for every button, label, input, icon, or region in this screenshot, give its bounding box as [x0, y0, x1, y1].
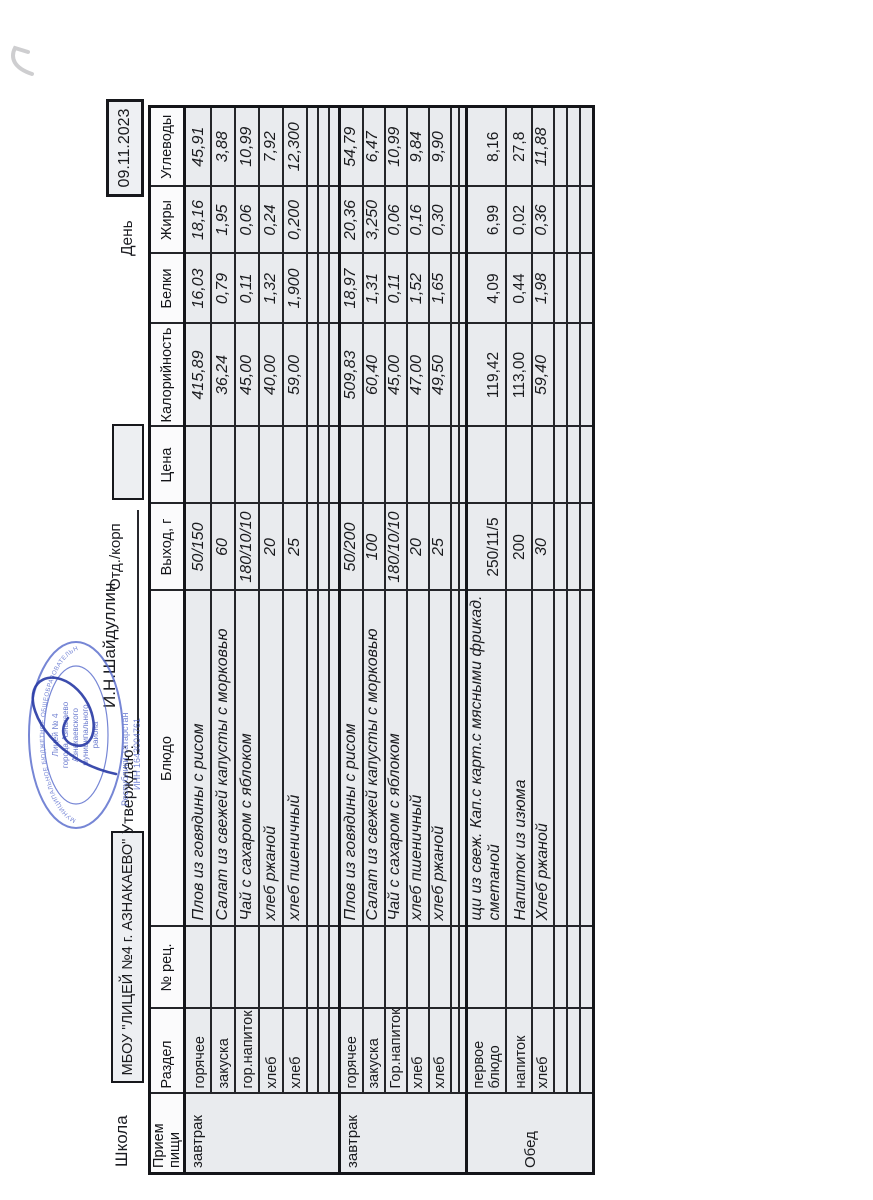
empty-row — [554, 107, 567, 1174]
empty-cell — [580, 591, 593, 927]
empty-cell — [318, 324, 329, 427]
col-header-price: Цена — [150, 427, 185, 504]
fat-cell: 0,24 — [259, 187, 283, 254]
menu-row: хлебхлеб пшеничный2559,001,9000,20012,30… — [283, 107, 307, 1174]
menu-row: напитокНапиток из изюма200113,000,440,02… — [506, 107, 532, 1174]
razdel-cell: закуска — [363, 1009, 385, 1094]
empty-cell — [459, 427, 467, 504]
recipe-cell — [283, 927, 307, 1009]
col-header-kcal: Калорийность — [150, 324, 185, 427]
empty-cell — [554, 107, 567, 187]
dish-cell: Салат из свежей капусты с морковью — [363, 591, 385, 927]
empty-cell — [329, 324, 340, 427]
out-cell: 50/150 — [185, 504, 211, 591]
price-cell — [385, 427, 407, 504]
empty-cell — [307, 324, 318, 427]
recipe-cell — [385, 927, 407, 1009]
empty-cell — [307, 427, 318, 504]
empty-cell — [580, 427, 593, 504]
out-cell: 50/200 — [340, 504, 363, 591]
meal-cell: Обед — [467, 1094, 594, 1174]
fat-cell: 0,200 — [283, 187, 307, 254]
col-header-meal: Прием пищи — [150, 1094, 185, 1174]
protein-cell: 4,09 — [467, 254, 507, 324]
dish-cell: хлеб ржаной — [429, 591, 451, 927]
empty-cell — [459, 324, 467, 427]
date-box: 09.11.2023 — [106, 99, 144, 197]
empty-cell — [451, 254, 459, 324]
dish-cell: Хлеб ржаной — [532, 591, 554, 927]
empty-cell — [318, 504, 329, 591]
out-cell: 200 — [506, 504, 532, 591]
recipe-cell — [429, 927, 451, 1009]
col-header-dish: Блюдо — [150, 591, 185, 927]
recipe-cell — [259, 927, 283, 1009]
razdel-cell: Гор.напиток — [385, 1009, 407, 1094]
carbs-cell: 10,99 — [235, 107, 259, 187]
empty-cell — [580, 504, 593, 591]
empty-cell — [451, 187, 459, 254]
empty-row — [580, 107, 593, 1174]
fat-cell: 0,06 — [385, 187, 407, 254]
empty-cell — [580, 187, 593, 254]
col-header-razdel: Раздел — [150, 1009, 185, 1094]
price-cell — [235, 427, 259, 504]
empty-cell — [318, 107, 329, 187]
protein-cell: 18,97 — [340, 254, 363, 324]
empty-cell — [329, 254, 340, 324]
empty-cell — [329, 427, 340, 504]
empty-row — [459, 107, 467, 1174]
date-value: 09.11.2023 — [116, 109, 134, 188]
carbs-cell: 6,47 — [363, 107, 385, 187]
recipe-cell — [363, 927, 385, 1009]
empty-cell — [451, 324, 459, 427]
empty-cell — [567, 1009, 580, 1094]
kcal-cell: 45,00 — [385, 324, 407, 427]
empty-cell — [307, 107, 318, 187]
recipe-cell — [185, 927, 211, 1009]
empty-cell — [554, 427, 567, 504]
recipe-cell — [211, 927, 235, 1009]
recipe-cell — [506, 927, 532, 1009]
empty-cell — [329, 927, 340, 1009]
empty-cell — [451, 427, 459, 504]
menu-row: завтракгорячееПлов из говядины с рисом50… — [340, 107, 363, 1174]
col-header-out: Выход, г — [150, 504, 185, 591]
empty-cell — [567, 504, 580, 591]
empty-cell — [580, 107, 593, 187]
empty-cell — [307, 927, 318, 1009]
fat-cell: 3,250 — [363, 187, 385, 254]
menu-row: хлебхлеб ржаной2040,001,320,247,92 — [259, 107, 283, 1174]
empty-cell — [580, 324, 593, 427]
empty-cell — [307, 591, 318, 927]
scanned-menu-document: Школа МБОУ "ЛИЦЕЙ №4 г. АЗНАКАЕВО" Утвер… — [0, 0, 873, 1200]
empty-cell — [459, 504, 467, 591]
school-label: Школа — [112, 1115, 132, 1167]
kcal-cell: 119,42 — [467, 324, 507, 427]
empty-cell — [451, 591, 459, 927]
empty-cell — [567, 427, 580, 504]
dish-cell: хлеб пшеничный — [407, 591, 429, 927]
empty-cell — [567, 254, 580, 324]
dish-cell: Плов из говядины с рисом — [340, 591, 363, 927]
dish-cell: щи из свеж. Кап.с карт.с мясными фрикад.… — [467, 591, 507, 927]
empty-cell — [329, 1009, 340, 1094]
price-cell — [407, 427, 429, 504]
menu-row: хлебхлеб пшеничный2047,001,520,169,84 — [407, 107, 429, 1174]
carbs-cell: 3,88 — [211, 107, 235, 187]
kcal-cell: 415,89 — [185, 324, 211, 427]
menu-row: хлебХлеб ржаной3059,401,980,3611,88 — [532, 107, 554, 1174]
price-cell — [185, 427, 211, 504]
dish-cell: Напиток из изюма — [506, 591, 532, 927]
price-cell — [363, 427, 385, 504]
dish-cell: Чай с сахаром с яблоком — [235, 591, 259, 927]
price-cell — [259, 427, 283, 504]
fat-cell: 6,99 — [467, 187, 507, 254]
empty-row — [567, 107, 580, 1174]
price-cell — [211, 427, 235, 504]
protein-cell: 0,11 — [235, 254, 259, 324]
meal-cell: завтрак — [185, 1094, 340, 1174]
dish-cell: Плов из говядины с рисом — [185, 591, 211, 927]
school-name-box: МБОУ "ЛИЦЕЙ №4 г. АЗНАКАЕВО" — [111, 831, 144, 1083]
out-cell: 25 — [283, 504, 307, 591]
recipe-cell — [340, 927, 363, 1009]
carbs-cell: 54,79 — [340, 107, 363, 187]
empty-cell — [567, 324, 580, 427]
dept-box — [112, 424, 144, 500]
empty-cell — [459, 107, 467, 187]
empty-cell — [554, 254, 567, 324]
out-cell: 60 — [211, 504, 235, 591]
out-cell: 30 — [532, 504, 554, 591]
col-header-fat: Жиры — [150, 187, 185, 254]
out-cell: 180/10/10 — [235, 504, 259, 591]
price-cell — [467, 427, 507, 504]
header-row: Прием пищи Раздел № рец. Блюдо Выход, г … — [150, 107, 185, 1174]
empty-cell — [318, 254, 329, 324]
protein-cell: 1,52 — [407, 254, 429, 324]
empty-cell — [459, 591, 467, 927]
razdel-cell: горячее — [340, 1009, 363, 1094]
empty-cell — [451, 927, 459, 1009]
kcal-cell: 509,83 — [340, 324, 363, 427]
empty-cell — [567, 187, 580, 254]
empty-cell — [580, 254, 593, 324]
fat-cell: 0,30 — [429, 187, 451, 254]
empty-row — [451, 107, 459, 1174]
recipe-cell — [532, 927, 554, 1009]
razdel-cell: хлеб — [259, 1009, 283, 1094]
kcal-cell: 59,40 — [532, 324, 554, 427]
recipe-cell — [407, 927, 429, 1009]
kcal-cell: 45,00 — [235, 324, 259, 427]
protein-cell: 0,11 — [385, 254, 407, 324]
empty-cell — [459, 254, 467, 324]
carbs-cell: 8,16 — [467, 107, 507, 187]
out-cell: 180/10/10 — [385, 504, 407, 591]
empty-cell — [554, 324, 567, 427]
fat-cell: 0,06 — [235, 187, 259, 254]
menu-row: Гор.напитокЧай с сахаром с яблоком180/10… — [385, 107, 407, 1174]
empty-cell — [459, 1009, 467, 1094]
empty-row — [329, 107, 340, 1174]
empty-cell — [318, 427, 329, 504]
protein-cell: 1,900 — [283, 254, 307, 324]
empty-row — [307, 107, 318, 1174]
empty-cell — [554, 504, 567, 591]
empty-cell — [451, 504, 459, 591]
menu-row: гор.напитокЧай с сахаром с яблоком180/10… — [235, 107, 259, 1174]
out-cell: 250/11/5 — [467, 504, 507, 591]
dish-cell: Салат из свежей капусты с морковью — [211, 591, 235, 927]
menu-row: закускаСалат из свежей капусты с морковь… — [363, 107, 385, 1174]
out-cell: 20 — [259, 504, 283, 591]
kcal-cell: 113,00 — [506, 324, 532, 427]
recipe-cell — [235, 927, 259, 1009]
carbs-cell: 45,91 — [185, 107, 211, 187]
price-cell — [506, 427, 532, 504]
razdel-cell: горячее — [185, 1009, 211, 1094]
menu-table-body: завтракгорячееПлов из говядины с рисом50… — [185, 107, 594, 1174]
price-cell — [532, 427, 554, 504]
empty-cell — [307, 1009, 318, 1094]
carbs-cell: 11,88 — [532, 107, 554, 187]
col-header-recipe: № рец. — [150, 927, 185, 1009]
carbs-cell: 10,99 — [385, 107, 407, 187]
empty-cell — [580, 1009, 593, 1094]
kcal-cell: 59,00 — [283, 324, 307, 427]
stamp-inn-text: ИНН 1643004761 — [132, 718, 142, 790]
menu-row: Обедпервое блюдощи из свеж. Кап.с карт.с… — [467, 107, 507, 1174]
carbs-cell: 7,92 — [259, 107, 283, 187]
empty-cell — [307, 504, 318, 591]
kcal-cell: 60,40 — [363, 324, 385, 427]
dept-label: Отд./корп — [107, 523, 124, 590]
empty-row — [318, 107, 329, 1174]
day-label: День — [119, 220, 137, 256]
protein-cell: 0,44 — [506, 254, 532, 324]
carbs-cell: 12,300 — [283, 107, 307, 187]
protein-cell: 16,03 — [185, 254, 211, 324]
protein-cell: 1,31 — [363, 254, 385, 324]
kcal-cell: 36,24 — [211, 324, 235, 427]
empty-cell — [567, 591, 580, 927]
empty-cell — [329, 504, 340, 591]
price-cell — [283, 427, 307, 504]
razdel-cell: первое блюдо — [467, 1009, 507, 1094]
razdel-cell: хлеб — [532, 1009, 554, 1094]
carbs-cell: 9,90 — [429, 107, 451, 187]
empty-cell — [329, 107, 340, 187]
empty-cell — [567, 107, 580, 187]
pen-mark — [6, 24, 38, 82]
empty-cell — [329, 187, 340, 254]
menu-table: Прием пищи Раздел № рец. Блюдо Выход, г … — [148, 105, 595, 1175]
razdel-cell: напиток — [506, 1009, 532, 1094]
empty-cell — [459, 927, 467, 1009]
empty-cell — [318, 1009, 329, 1094]
dish-cell: Чай с сахаром с яблоком — [385, 591, 407, 927]
razdel-cell: гор.напиток — [235, 1009, 259, 1094]
empty-cell — [580, 927, 593, 1009]
empty-cell — [318, 927, 329, 1009]
protein-cell: 0,79 — [211, 254, 235, 324]
dish-cell: хлеб пшеничный — [283, 591, 307, 927]
razdel-cell: закуска — [211, 1009, 235, 1094]
fat-cell: 18,16 — [185, 187, 211, 254]
out-cell: 25 — [429, 504, 451, 591]
menu-row: хлебхлеб ржаной2549,501,650,309,90 — [429, 107, 451, 1174]
menu-row: закускаСалат из свежей капусты с морковь… — [211, 107, 235, 1174]
handwritten-signature — [20, 632, 128, 802]
protein-cell: 1,32 — [259, 254, 283, 324]
empty-cell — [554, 187, 567, 254]
empty-cell — [459, 187, 467, 254]
empty-cell — [554, 1009, 567, 1094]
protein-cell: 1,65 — [429, 254, 451, 324]
price-cell — [429, 427, 451, 504]
meal-cell: завтрак — [340, 1094, 467, 1174]
empty-cell — [567, 927, 580, 1009]
fat-cell: 0,16 — [407, 187, 429, 254]
carbs-cell: 27,8 — [506, 107, 532, 187]
razdel-cell: хлеб — [429, 1009, 451, 1094]
dish-cell: хлеб ржаной — [259, 591, 283, 927]
empty-cell — [451, 107, 459, 187]
empty-cell — [318, 187, 329, 254]
out-cell: 20 — [407, 504, 429, 591]
school-name: МБОУ "ЛИЦЕЙ №4 г. АЗНАКАЕВО" — [120, 839, 136, 1076]
fat-cell: 0,02 — [506, 187, 532, 254]
protein-cell: 1,98 — [532, 254, 554, 324]
fat-cell: 0,36 — [532, 187, 554, 254]
kcal-cell: 47,00 — [407, 324, 429, 427]
razdel-cell: хлеб — [407, 1009, 429, 1094]
col-header-carbs: Углеводы — [150, 107, 185, 187]
recipe-cell — [467, 927, 507, 1009]
empty-cell — [554, 927, 567, 1009]
col-header-protein: Белки — [150, 254, 185, 324]
carbs-cell: 9,84 — [407, 107, 429, 187]
empty-cell — [554, 591, 567, 927]
kcal-cell: 49,50 — [429, 324, 451, 427]
empty-cell — [451, 1009, 459, 1094]
empty-cell — [307, 187, 318, 254]
fat-cell: 1,95 — [211, 187, 235, 254]
menu-row: завтракгорячееПлов из говядины с рисом50… — [185, 107, 211, 1174]
kcal-cell: 40,00 — [259, 324, 283, 427]
empty-cell — [329, 591, 340, 927]
empty-cell — [307, 254, 318, 324]
fat-cell: 20,36 — [340, 187, 363, 254]
razdel-cell: хлеб — [283, 1009, 307, 1094]
out-cell: 100 — [363, 504, 385, 591]
price-cell — [340, 427, 363, 504]
empty-cell — [318, 591, 329, 927]
